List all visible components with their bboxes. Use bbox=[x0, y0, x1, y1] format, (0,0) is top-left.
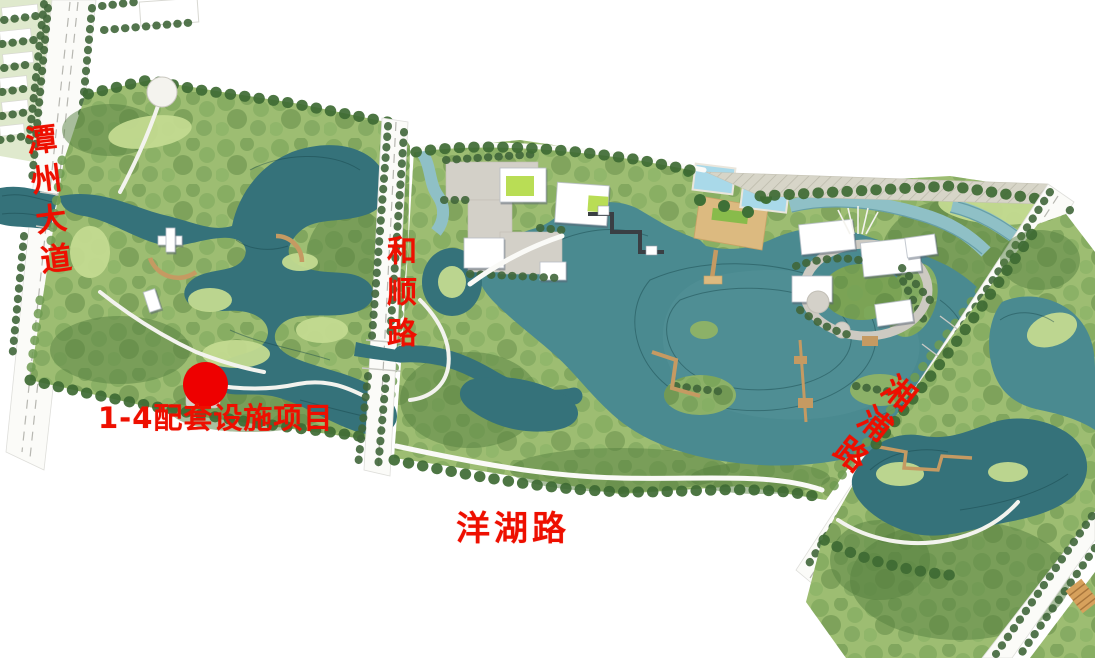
project-marker-label: 1-4配套设施项目 bbox=[98, 404, 333, 433]
site-plan-map: 潭州大道 和顺路 洋湖路 湘浦路 1-4配套设施项目 bbox=[0, 0, 1095, 658]
road-label-yanghu-road: 洋湖路 bbox=[456, 512, 570, 546]
road-label-heshun-road: 和顺路 bbox=[383, 235, 413, 358]
park-entrance-plaza bbox=[147, 77, 177, 107]
map-canvas bbox=[0, 0, 1095, 658]
